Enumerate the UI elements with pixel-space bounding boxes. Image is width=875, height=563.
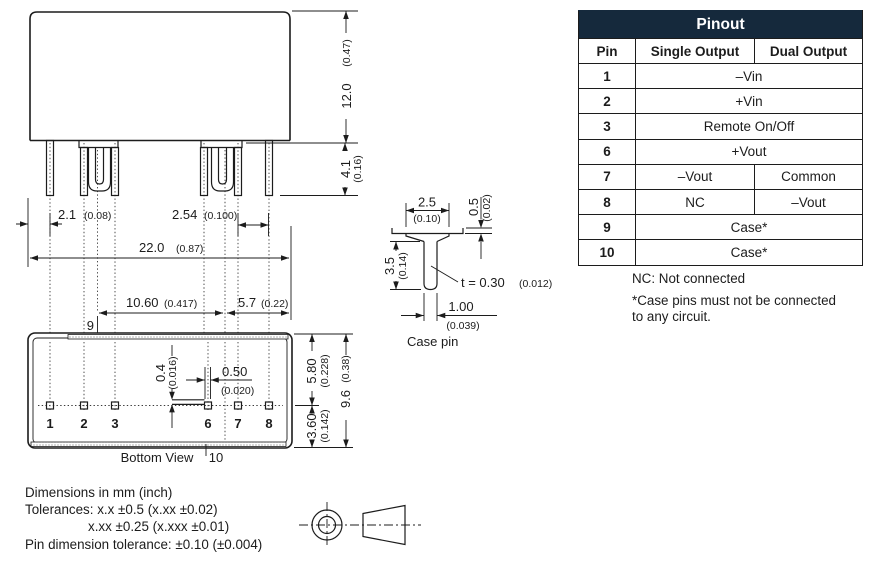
datasheet-mechanical-page: (0.47) 12.0 4.1 (0.16) 2.1 (0.08) 2.54 (…	[0, 0, 875, 563]
dim-pin-offset-mm: 2.1	[58, 207, 76, 222]
table-row: 10 Case*	[579, 240, 863, 265]
pin-number-3: 3	[111, 416, 118, 431]
dim-height-mm: 12.0	[339, 83, 354, 108]
dim-case-tab-w-mm: 1.00	[448, 299, 473, 314]
case-pin-10-label: 10	[209, 450, 223, 465]
pin-cell: 2	[579, 89, 636, 114]
pin-number-8: 8	[265, 416, 272, 431]
dim-case-w-in: (0.10)	[413, 213, 440, 225]
table-row: 8 NC –Vout	[579, 189, 863, 214]
pin-number-6: 6	[204, 416, 211, 431]
col-header-single-output: Single Output	[636, 39, 755, 64]
dim-pin-len-in: (0.16)	[352, 155, 364, 182]
note-case-1: *Case pins must not be connected	[632, 293, 836, 309]
single-output-cell: –Vout	[636, 164, 755, 189]
dim-top-mm: 5.80	[304, 358, 319, 383]
dim-pin-offset-in: (0.08)	[84, 210, 111, 222]
dim-thickness-in: (0.012)	[519, 278, 552, 290]
dim-case-step-in: (0.02)	[481, 194, 493, 221]
tolerances-line-1: Tolerances: x.x ±0.5 (x.xx ±0.02)	[25, 501, 262, 518]
bottom-view-label: Bottom View	[121, 450, 194, 465]
col-header-pin: Pin	[579, 39, 636, 64]
tolerances-line-2: x.xx ±0.25 (x.xxx ±0.01)	[25, 518, 262, 535]
dual-output-cell: –Vout	[755, 189, 863, 214]
table-row: 3 Remote On/Off	[579, 114, 863, 139]
col-header-dual-output: Dual Output	[755, 39, 863, 64]
dim-depth-mm: 9.6	[338, 390, 353, 408]
pin-cell: 9	[579, 215, 636, 240]
dim-depth-in: (0.38)	[340, 355, 352, 382]
case-pin-detail: 2.5 (0.10) 0.5 (0.02) 3.5 (0.14) t = 0.3…	[382, 194, 552, 349]
pin-cell: 1	[579, 64, 636, 89]
dual-output-cell: Common	[755, 164, 863, 189]
table-row: 6 +Vout	[579, 139, 863, 164]
case-strip-bottom	[31, 442, 286, 447]
dim-top-in: (0.228)	[319, 354, 331, 387]
dim-width-in: (0.87)	[176, 243, 203, 255]
dim-case-edge-in: (0.22)	[261, 298, 288, 310]
table-row: 2 +Vin	[579, 89, 863, 114]
pin-cell: 6	[579, 139, 636, 164]
dim-case-step-mm: 0.5	[466, 198, 481, 216]
dim-height-in: (0.47)	[341, 39, 353, 66]
table-row: 1 –Vin	[579, 64, 863, 89]
pin-cell: 7	[579, 164, 636, 189]
case-pin-9-label: 9	[87, 318, 94, 333]
pin-number-1: 1	[46, 416, 53, 431]
pinout-header-row: Pin Single Output Dual Output	[579, 39, 863, 64]
dim-case-len-mm: 3.5	[382, 257, 397, 275]
dim-bot-in: (0.142)	[319, 409, 331, 442]
pin-tolerance-line: Pin dimension tolerance: ±0.10 (±0.004)	[25, 536, 262, 553]
mechanical-drawing-canvas: (0.47) 12.0 4.1 (0.16) 2.1 (0.08) 2.54 (…	[0, 0, 570, 563]
dim-case-tab-w-in: (0.039)	[446, 320, 479, 332]
pin-number-2: 2	[80, 416, 87, 431]
function-cell: Case*	[636, 240, 863, 265]
pin-number-7: 7	[234, 416, 241, 431]
side-view-pins	[47, 141, 273, 196]
dim-case-pitch-in: (0.417)	[164, 298, 197, 310]
function-cell: +Vout	[636, 139, 863, 164]
side-view-case-pins	[89, 148, 234, 192]
bottom-view-drawing: 1 2 3 6 7 8 0.4 (0.016) 0.50 (0.020) 5.8…	[28, 333, 353, 465]
function-cell: Remote On/Off	[636, 114, 863, 139]
dim-case-pitch-mm: 10.60	[126, 295, 159, 310]
dim-pin-w-in: (0.020)	[221, 385, 254, 397]
dim-tab-in: (0.016)	[167, 356, 179, 389]
dim-case-len-in: (0.14)	[397, 252, 409, 279]
dim-pin-w-mm: 0.50	[222, 364, 247, 379]
pinout-table: Pinout Pin Single Output Dual Output 1 –…	[578, 10, 863, 266]
dim-thickness: t = 0.30	[461, 275, 505, 290]
function-cell: +Vin	[636, 89, 863, 114]
projection-symbol-icon	[299, 502, 421, 548]
pinout-notes: NC: Not connected *Case pins must not be…	[632, 271, 836, 326]
pin-cell: 10	[579, 240, 636, 265]
note-case-2: to any circuit.	[632, 309, 836, 325]
single-output-cell: NC	[636, 189, 755, 214]
case-pin-detail-label: Case pin	[407, 334, 458, 349]
note-nc: NC: Not connected	[632, 271, 836, 287]
function-cell: Case*	[636, 215, 863, 240]
dim-pin-len-mm: 4.1	[338, 160, 353, 178]
pin-cell: 8	[579, 189, 636, 214]
dim-width-mm: 22.0	[139, 240, 164, 255]
dim-case-edge-mm: 5.7	[238, 295, 256, 310]
dim-tab-mm: 0.4	[153, 364, 168, 382]
pin-cell: 3	[579, 114, 636, 139]
function-cell: –Vin	[636, 64, 863, 89]
side-view-drawing: (0.47) 12.0 4.1 (0.16) 2.1 (0.08) 2.54 (…	[16, 11, 364, 336]
pinout-title: Pinout	[579, 11, 863, 39]
dim-case-w-mm: 2.5	[418, 195, 436, 210]
case-strip-top	[68, 335, 288, 340]
dim-pitch-in: (0.100)	[204, 210, 237, 222]
dim-bot-mm: 3.60	[304, 413, 319, 438]
dimension-notes: Dimensions in mm (inch) Tolerances: x.x …	[25, 484, 262, 553]
table-row: 9 Case*	[579, 215, 863, 240]
dimensions-units-line: Dimensions in mm (inch)	[25, 484, 262, 501]
dim-pitch-mm: 2.54	[172, 207, 197, 222]
table-row: 7 –Vout Common	[579, 164, 863, 189]
